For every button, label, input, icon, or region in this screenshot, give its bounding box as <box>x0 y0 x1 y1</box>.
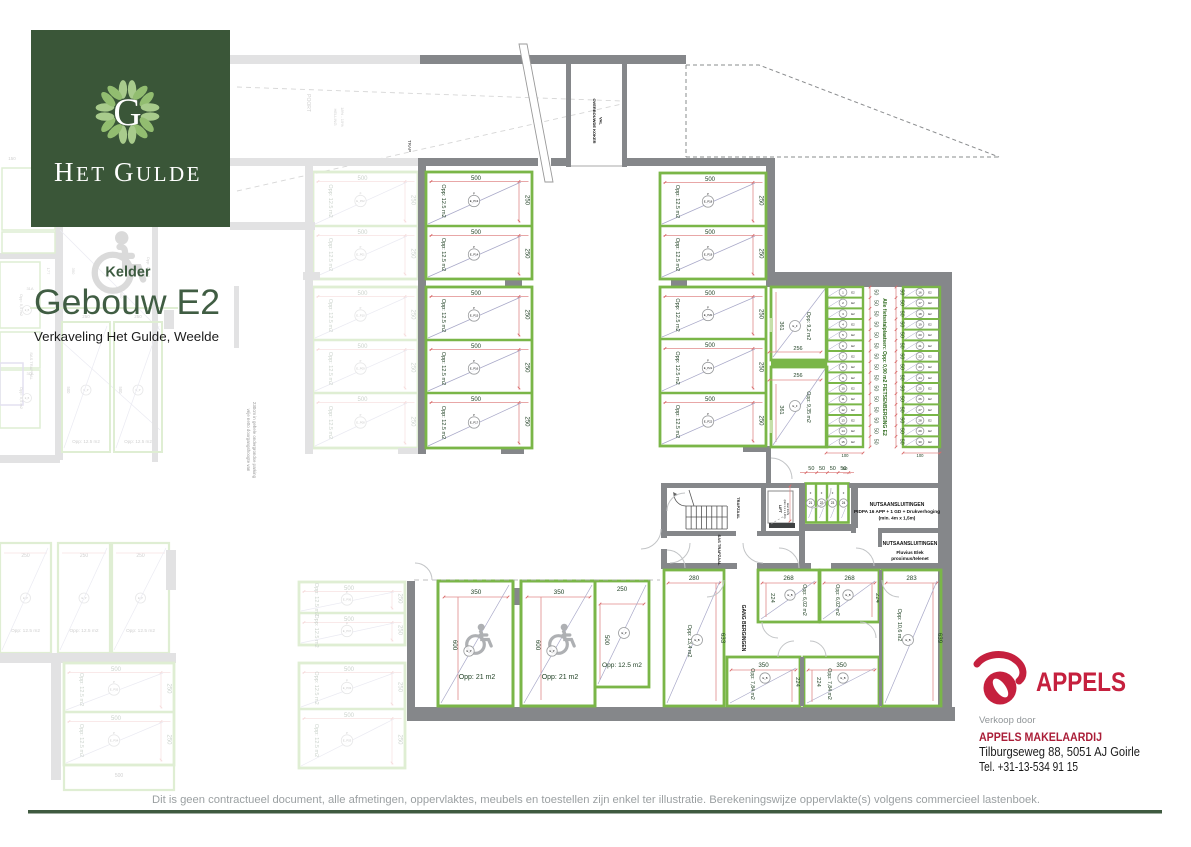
svg-text:15: 15 <box>841 440 845 444</box>
svg-text:21: 21 <box>918 344 922 348</box>
svg-text:Opp: 12.5 m2: Opp: 12.5 m2 <box>440 238 446 271</box>
svg-text:50: 50 <box>873 439 879 445</box>
svg-text:100: 100 <box>842 453 850 458</box>
svg-text:Opp: 9,2 m2: Opp: 9,2 m2 <box>805 312 811 341</box>
svg-text:50: 50 <box>899 321 905 327</box>
svg-text:E2: E2 <box>851 419 855 423</box>
svg-text:250: 250 <box>80 553 89 559</box>
svg-text:P: P <box>360 245 362 249</box>
svg-text:250: 250 <box>524 362 530 373</box>
svg-text:E_P06: E_P06 <box>343 598 352 602</box>
svg-text:Opp: 12.5 m2: Opp: 12.5 m2 <box>69 628 98 634</box>
svg-text:250: 250 <box>397 734 403 745</box>
svg-text:250: 250 <box>758 248 764 259</box>
svg-text:P: P <box>707 192 709 196</box>
svg-text:350: 350 <box>71 268 76 275</box>
svg-text:P: P <box>707 305 709 309</box>
svg-text:256: 256 <box>793 346 802 352</box>
svg-text:20: 20 <box>918 333 922 337</box>
svg-text:E_P22: E_P22 <box>704 420 713 424</box>
svg-text:250: 250 <box>410 248 416 259</box>
svg-text:P: P <box>113 731 115 735</box>
svg-text:E_P03: E_P03 <box>343 739 352 743</box>
svg-text:proximus/telenet: proximus/telenet <box>891 556 929 561</box>
svg-text:E2: E2 <box>928 376 932 380</box>
svg-text:283: 283 <box>906 575 917 582</box>
svg-text:29: 29 <box>918 429 922 433</box>
svg-text:E_B: E_B <box>845 593 850 597</box>
svg-text:27: 27 <box>918 408 922 412</box>
svg-text:E2: E2 <box>851 333 855 337</box>
svg-text:P: P <box>346 678 348 682</box>
svg-text:Opp: 12.5 m2: Opp: 12.5 m2 <box>313 583 319 616</box>
svg-text:50: 50 <box>899 417 905 423</box>
svg-text:Opp: 12.5 m2: Opp: 12.5 m2 <box>674 185 680 218</box>
svg-text:P: P <box>473 191 475 195</box>
svg-text:G: G <box>113 91 141 134</box>
svg-text:11: 11 <box>841 397 844 401</box>
svg-text:350: 350 <box>758 662 769 669</box>
svg-text:500: 500 <box>471 230 482 236</box>
svg-text:E_B: E_B <box>762 676 767 680</box>
svg-text:E_P04: E_P04 <box>110 739 119 743</box>
svg-text:E2: E2 <box>851 344 855 348</box>
svg-text:250: 250 <box>410 362 416 373</box>
svg-text:268: 268 <box>783 575 794 582</box>
svg-text:500: 500 <box>344 713 355 719</box>
svg-text:14: 14 <box>841 429 845 433</box>
svg-text:E_P20: E_P20 <box>704 313 713 317</box>
svg-text:E_P05: E_P05 <box>110 688 119 692</box>
svg-text:50: 50 <box>819 466 825 472</box>
svg-text:E2: E2 <box>928 355 932 359</box>
svg-text:250: 250 <box>397 625 403 636</box>
svg-text:Tilburgseweg 88, 5051 AJ Goirl: Tilburgseweg 88, 5051 AJ Goirle <box>979 745 1140 759</box>
svg-text:250: 250 <box>410 195 416 206</box>
svg-text:18% - 15%: 18% - 15% <box>340 107 345 127</box>
svg-text:P: P <box>473 245 475 249</box>
svg-text:E2: E2 <box>851 397 855 401</box>
svg-text:Opp: 12.5 m2: Opp: 12.5 m2 <box>313 614 319 647</box>
svg-text:E2: E2 <box>928 291 932 295</box>
svg-text:50: 50 <box>873 407 879 413</box>
svg-text:E2: E2 <box>851 301 855 305</box>
svg-text:Tel. +31-13-534 91 15: Tel. +31-13-534 91 15 <box>979 760 1078 774</box>
svg-text:500: 500 <box>357 344 368 350</box>
svg-text:50: 50 <box>873 385 879 391</box>
svg-text:50: 50 <box>899 375 905 381</box>
svg-text:50: 50 <box>873 428 879 434</box>
svg-text:P: P <box>707 358 709 362</box>
svg-text:350: 350 <box>836 662 847 669</box>
svg-text:177: 177 <box>46 268 51 275</box>
svg-text:P: P <box>473 306 475 310</box>
svg-text:361: 361 <box>778 321 784 330</box>
svg-text:639: 639 <box>936 633 943 644</box>
svg-text:Opp: 13,4 m2: Opp: 13,4 m2 <box>686 625 692 658</box>
svg-text:P: P <box>707 245 709 249</box>
svg-text:E_P01: E_P01 <box>356 253 365 257</box>
svg-text:E_P02: E_P02 <box>356 199 365 203</box>
svg-text:350: 350 <box>471 589 482 596</box>
svg-text:P: P <box>360 306 362 310</box>
svg-text:E2: E2 <box>928 344 932 348</box>
svg-text:50: 50 <box>899 364 905 370</box>
svg-text:250: 250 <box>758 309 764 320</box>
svg-text:13: 13 <box>841 419 845 423</box>
svg-text:Opp: 12.5 m2: Opp: 12.5 m2 <box>674 298 680 331</box>
svg-text:50: 50 <box>873 417 879 423</box>
svg-text:E2: E2 <box>851 376 855 380</box>
svg-text:50: 50 <box>873 343 879 349</box>
svg-text:NUTSAANSLUITINGEN: NUTSAANSLUITINGEN <box>870 502 925 508</box>
svg-text:50: 50 <box>873 364 879 370</box>
svg-text:E2: E2 <box>928 408 932 412</box>
svg-text:E_P: E_P <box>550 649 555 653</box>
svg-text:10: 10 <box>841 387 845 391</box>
svg-text:23: 23 <box>831 501 835 505</box>
svg-text:50: 50 <box>899 343 905 349</box>
svg-text:P: P <box>346 731 348 735</box>
svg-text:500: 500 <box>344 667 355 673</box>
svg-text:Opp: 12.5 m2: Opp: 12.5 m2 <box>327 406 333 439</box>
svg-text:250: 250 <box>617 586 628 593</box>
svg-text:600: 600 <box>451 640 458 651</box>
svg-text:268: 268 <box>844 575 855 582</box>
svg-text:E_P21: E_P21 <box>704 366 713 370</box>
svg-text:250: 250 <box>758 362 764 373</box>
svg-text:E2: E2 <box>851 408 855 412</box>
svg-text:250: 250 <box>758 195 764 206</box>
svg-text:Opp: 21 m2: Opp: 21 m2 <box>542 674 579 681</box>
svg-text:P: P <box>360 413 362 417</box>
svg-text:24: 24 <box>918 376 922 380</box>
svg-text:E_P07: E_P07 <box>343 629 352 633</box>
svg-text:50: 50 <box>873 300 879 306</box>
svg-text:Alle fietsstalplaatsen: Opp: 0: Alle fietsstalplaatsen: Opp: 0,90 m2 FIE… <box>881 298 887 436</box>
svg-text:50: 50 <box>899 300 905 306</box>
svg-text:P: P <box>346 590 348 594</box>
svg-text:500: 500 <box>705 397 716 403</box>
svg-text:17: 17 <box>918 301 922 305</box>
svg-text:25: 25 <box>918 387 922 391</box>
svg-text:LIFT: LIFT <box>778 505 782 514</box>
svg-text:Opp: 12.5 m2: Opp: 12.5 m2 <box>674 351 680 384</box>
svg-text:E_P17: E_P17 <box>470 421 479 425</box>
svg-text:P: P <box>707 412 709 416</box>
svg-text:50: 50 <box>843 466 848 471</box>
svg-text:E_P15: E_P15 <box>470 314 479 318</box>
svg-text:E_B: E_B <box>694 638 699 642</box>
svg-text:250: 250 <box>410 416 416 427</box>
svg-text:E_B: E_B <box>787 593 792 597</box>
svg-text:22: 22 <box>918 355 922 359</box>
svg-text:50: 50 <box>899 439 905 445</box>
svg-text:500: 500 <box>705 177 716 183</box>
svg-text:E_P13: E_P13 <box>470 199 479 203</box>
svg-text:500: 500 <box>357 230 368 236</box>
svg-text:HELLING: HELLING <box>333 108 338 125</box>
svg-text:500: 500 <box>603 635 609 646</box>
svg-text:500: 500 <box>471 176 482 182</box>
svg-text:Opp: 12.5 m2: Opp: 12.5 m2 <box>126 628 155 634</box>
svg-text:E2: E2 <box>928 440 932 444</box>
svg-text:30: 30 <box>918 440 922 444</box>
svg-text:230cm in gehele ondergrondse p: 230cm in gehele ondergrondse parking <box>252 402 257 479</box>
svg-text:Opp: 12.5 m2: Opp: 12.5 m2 <box>674 405 680 438</box>
svg-text:P: P <box>473 413 475 417</box>
svg-text:Opp: 12.5 m2: Opp: 12.5 m2 <box>440 299 446 332</box>
svg-text:21: 21 <box>809 501 813 505</box>
svg-text:500: 500 <box>705 343 716 349</box>
svg-text:100: 100 <box>917 453 925 458</box>
svg-text:TRAPZAAL: TRAPZAAL <box>736 497 741 519</box>
svg-text:256: 256 <box>793 373 802 379</box>
svg-text:Opp: 12.5 m2: Opp: 12.5 m2 <box>72 439 100 444</box>
svg-text:SAS TRAPZAAL: SAS TRAPZAAL <box>717 535 722 566</box>
svg-text:APPELS: APPELS <box>1036 667 1126 697</box>
svg-text:500: 500 <box>471 397 482 403</box>
svg-text:500: 500 <box>705 291 716 297</box>
svg-text:Verkoop door: Verkoop door <box>979 715 1036 726</box>
svg-text:E2: E2 <box>928 323 932 327</box>
svg-text:19: 19 <box>918 323 922 327</box>
svg-text:50: 50 <box>899 332 905 338</box>
svg-text:E2: E2 <box>851 440 855 444</box>
svg-text:E_P: E_P <box>467 649 472 653</box>
svg-text:E2: E2 <box>851 429 855 433</box>
svg-text:361: 361 <box>778 405 784 414</box>
svg-text:Opp: 12.5 m2: Opp: 12.5 m2 <box>313 724 319 757</box>
svg-text:E_B: E_B <box>25 397 30 400</box>
svg-text:TRAP: TRAP <box>407 140 412 152</box>
svg-text:250: 250 <box>410 309 416 320</box>
svg-text:500: 500 <box>471 291 482 297</box>
svg-text:APPELS MAKELAARDIJ: APPELS MAKELAARDIJ <box>979 730 1102 744</box>
svg-text:224: 224 <box>769 593 775 603</box>
svg-text:Opp: 12.5 m2: Opp: 12.5 m2 <box>327 184 333 217</box>
svg-text:E2: E2 <box>928 429 932 433</box>
svg-text:Opp: 7,84 m2: Opp: 7,84 m2 <box>749 668 755 700</box>
svg-text:E2: E2 <box>851 387 855 391</box>
svg-text:vrije netto doorgangshoogte va: vrije netto doorgangshoogte van <box>246 409 251 472</box>
svg-text:Gebouw E2: Gebouw E2 <box>34 283 220 322</box>
svg-text:250: 250 <box>166 734 172 745</box>
svg-text:Opp: 12.5 m2: Opp: 12.5 m2 <box>327 352 333 385</box>
svg-text:250: 250 <box>524 195 530 206</box>
svg-text:Opp: 12.5 m2: Opp: 12.5 m2 <box>327 238 333 271</box>
svg-text:50: 50 <box>873 332 879 338</box>
svg-text:250: 250 <box>166 683 172 694</box>
svg-text:E2: E2 <box>851 291 855 295</box>
svg-text:500: 500 <box>111 716 122 722</box>
svg-text:23: 23 <box>918 365 922 369</box>
svg-text:16: 16 <box>918 291 922 295</box>
svg-text:P: P <box>473 359 475 363</box>
svg-text:Opp: 12.5 m2: Opp: 12.5 m2 <box>327 299 333 332</box>
svg-text:SAS TRAPHAL: SAS TRAPHAL <box>29 352 34 380</box>
svg-text:P: P <box>360 191 362 195</box>
svg-text:E_P10: E_P10 <box>356 314 365 318</box>
svg-text:150: 150 <box>8 156 16 161</box>
svg-text:Opp: 12.5 m2: Opp: 12.5 m2 <box>602 662 642 669</box>
svg-text:50: 50 <box>899 385 905 391</box>
svg-text:OVERBOUWDE KOKER: OVERBOUWDE KOKER <box>592 98 597 143</box>
svg-text:600: 600 <box>534 640 541 651</box>
svg-text:Opp: 10,6 m2: Opp: 10,6 m2 <box>896 609 902 642</box>
svg-text:Opp: 9,35 m2: Opp: 9,35 m2 <box>805 391 811 423</box>
svg-text:E_F: E_F <box>793 404 798 408</box>
svg-text:500: 500 <box>357 176 368 182</box>
svg-text:Fluvius Elek: Fluvius Elek <box>896 550 924 555</box>
svg-text:E2: E2 <box>851 312 855 316</box>
svg-text:Kelder: Kelder <box>105 265 150 281</box>
svg-text:50: 50 <box>873 289 879 295</box>
svg-text:Opp: 12.5 m2: Opp: 12.5 m2 <box>11 628 40 634</box>
svg-text:Opp: 6,02 m2: Opp: 6,02 m2 <box>834 584 840 616</box>
svg-text:500: 500 <box>118 387 123 395</box>
svg-text:24: 24 <box>842 501 846 505</box>
svg-text:Opp: 12.5 m2: Opp: 12.5 m2 <box>124 439 152 444</box>
svg-text:250: 250 <box>136 553 145 559</box>
svg-text:POORT: POORT <box>305 94 311 112</box>
svg-text:E_B: E_B <box>25 309 30 312</box>
svg-text:E2: E2 <box>928 301 932 305</box>
svg-text:500: 500 <box>471 344 482 350</box>
svg-text:250: 250 <box>524 309 530 320</box>
svg-text:E_P: E_P <box>621 631 626 635</box>
svg-text:Opp: 12.5 m2: Opp: 12.5 m2 <box>440 184 446 217</box>
svg-text:E_F: E_F <box>793 324 798 328</box>
svg-text:E2: E2 <box>928 397 932 401</box>
svg-text:500: 500 <box>111 667 122 673</box>
svg-text:Opp: 12.5 m2: Opp: 12.5 m2 <box>78 673 84 706</box>
svg-text:(min. 4m x 1,5m): (min. 4m x 1,5m) <box>879 516 916 521</box>
svg-text:280: 280 <box>689 575 700 582</box>
svg-text:E_P14: E_P14 <box>470 253 479 257</box>
svg-text:E_P19: E_P19 <box>704 253 713 257</box>
svg-text:HET GULDE: HET GULDE <box>54 157 202 187</box>
svg-text:E2: E2 <box>851 365 855 369</box>
svg-text:250: 250 <box>397 593 403 604</box>
svg-text:E_P03: E_P03 <box>343 686 352 690</box>
svg-text:E2: E2 <box>928 333 932 337</box>
svg-text:633: 633 <box>719 633 726 644</box>
svg-text:E2: E2 <box>928 365 932 369</box>
svg-text:12: 12 <box>841 408 845 412</box>
svg-text:224: 224 <box>794 677 800 687</box>
svg-text:E_P09: E_P09 <box>356 367 365 371</box>
svg-text:50: 50 <box>873 321 879 327</box>
svg-text:250: 250 <box>758 415 764 426</box>
svg-text:50: 50 <box>899 289 905 295</box>
svg-text:NUTSAANSLUITINGEN: NUTSAANSLUITINGEN <box>883 541 938 547</box>
svg-text:E_P08: E_P08 <box>356 421 365 425</box>
svg-text:Opp: 7,84 m2: Opp: 7,84 m2 <box>826 668 832 700</box>
svg-text:26: 26 <box>918 397 922 401</box>
svg-text:VAL: VAL <box>599 117 604 125</box>
svg-text:500: 500 <box>705 230 716 236</box>
svg-text:PIDPA 16 APP + 1 GD + Drukverh: PIDPA 16 APP + 1 GD + Drukverhoging <box>854 509 940 514</box>
svg-text:350: 350 <box>554 589 565 596</box>
svg-text:50: 50 <box>899 311 905 317</box>
svg-text:Dit is geen contractueel docum: Dit is geen contractueel document, alle … <box>152 794 1040 806</box>
svg-text:P: P <box>360 359 362 363</box>
svg-text:E_B: E_B <box>840 676 845 680</box>
svg-text:500: 500 <box>357 291 368 297</box>
svg-text:Opp: 12.5 m2: Opp: 12.5 m2 <box>440 352 446 385</box>
svg-text:Opp: 12.5 m2: Opp: 12.5 m2 <box>440 406 446 439</box>
svg-text:50: 50 <box>873 353 879 359</box>
svg-text:50: 50 <box>873 311 879 317</box>
svg-text:Opp: 21 m2: Opp: 21 m2 <box>459 674 496 681</box>
svg-text:500: 500 <box>66 387 71 395</box>
svg-text:E2: E2 <box>928 419 932 423</box>
svg-text:Verkaveling Het Gulde, Weelde: Verkaveling Het Gulde, Weelde <box>34 329 219 344</box>
svg-text:224: 224 <box>815 677 821 687</box>
svg-text:Opp: 5,5 m2: Opp: 5,5 m2 <box>19 294 24 317</box>
svg-text:E_B: E_B <box>905 638 910 642</box>
svg-text:250: 250 <box>524 248 530 259</box>
svg-text:E2: E2 <box>851 323 855 327</box>
svg-text:P: P <box>346 621 348 625</box>
svg-text:500: 500 <box>115 773 124 779</box>
svg-text:250: 250 <box>397 682 403 693</box>
svg-text:50: 50 <box>808 466 814 472</box>
svg-text:Opp: 12.5 m2: Opp: 12.5 m2 <box>78 724 84 757</box>
svg-text:GANG BERGINGEN: GANG BERGINGEN <box>740 605 746 652</box>
svg-text:E2: E2 <box>851 355 855 359</box>
svg-text:50: 50 <box>830 466 836 472</box>
svg-text:250: 250 <box>524 416 530 427</box>
svg-text:28: 28 <box>918 419 922 423</box>
svg-text:250: 250 <box>21 553 30 559</box>
svg-text:50: 50 <box>899 428 905 434</box>
svg-text:E_P16: E_P16 <box>470 367 479 371</box>
svg-text:18: 18 <box>918 312 922 316</box>
svg-text:Opp: 12.5 m2: Opp: 12.5 m2 <box>674 238 680 271</box>
svg-text:E2: E2 <box>928 387 932 391</box>
svg-text:E_P18: E_P18 <box>704 200 713 204</box>
svg-text:50: 50 <box>899 407 905 413</box>
svg-text:P: P <box>113 680 115 684</box>
svg-text:50: 50 <box>873 396 879 402</box>
svg-text:50: 50 <box>873 375 879 381</box>
svg-text:500: 500 <box>357 397 368 403</box>
svg-text:Opp: 12.5 m2: Opp: 12.5 m2 <box>313 671 319 704</box>
svg-text:50: 50 <box>899 353 905 359</box>
svg-text:E2: E2 <box>928 312 932 316</box>
svg-text:50: 50 <box>899 396 905 402</box>
svg-text:Opp: 6,02 m2: Opp: 6,02 m2 <box>801 584 807 616</box>
svg-text:31A: 31A <box>26 286 33 291</box>
